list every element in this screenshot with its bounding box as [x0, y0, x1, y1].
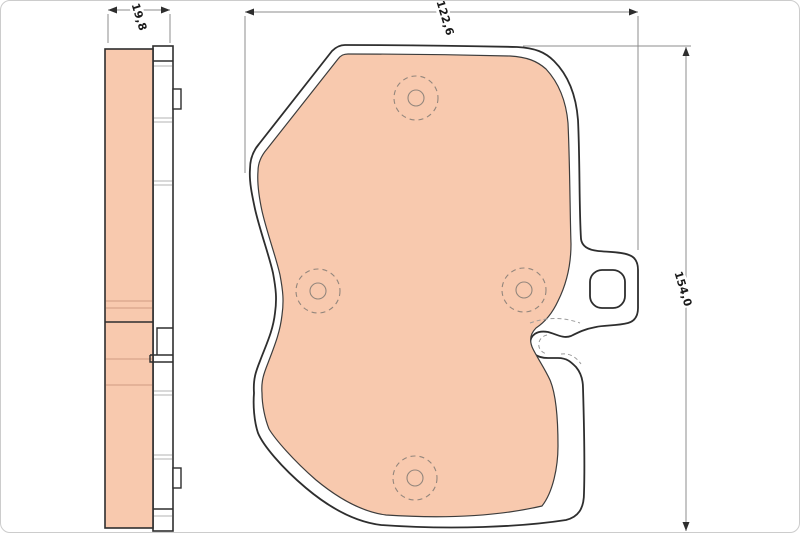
friction-surface — [258, 54, 571, 517]
side-view — [105, 46, 181, 531]
arrowhead-left-icon — [245, 9, 254, 16]
front-view — [250, 45, 638, 527]
arrowhead-up-icon — [683, 47, 690, 56]
brake-pad-technical-drawing: 19,8 122,6 154,0 — [0, 0, 800, 533]
friction-material-side — [105, 49, 153, 528]
ear-hole — [590, 270, 625, 308]
arrowhead-right-icon — [629, 9, 638, 16]
drawing-svg — [1, 1, 800, 533]
backing-tab-top — [173, 89, 181, 109]
backing-plate-side — [153, 46, 173, 531]
backing-tab-bottom — [173, 468, 181, 488]
arrowhead-down-icon — [683, 522, 690, 531]
arrowhead-right-icon — [161, 7, 170, 14]
arrowhead-left-icon — [108, 7, 117, 14]
